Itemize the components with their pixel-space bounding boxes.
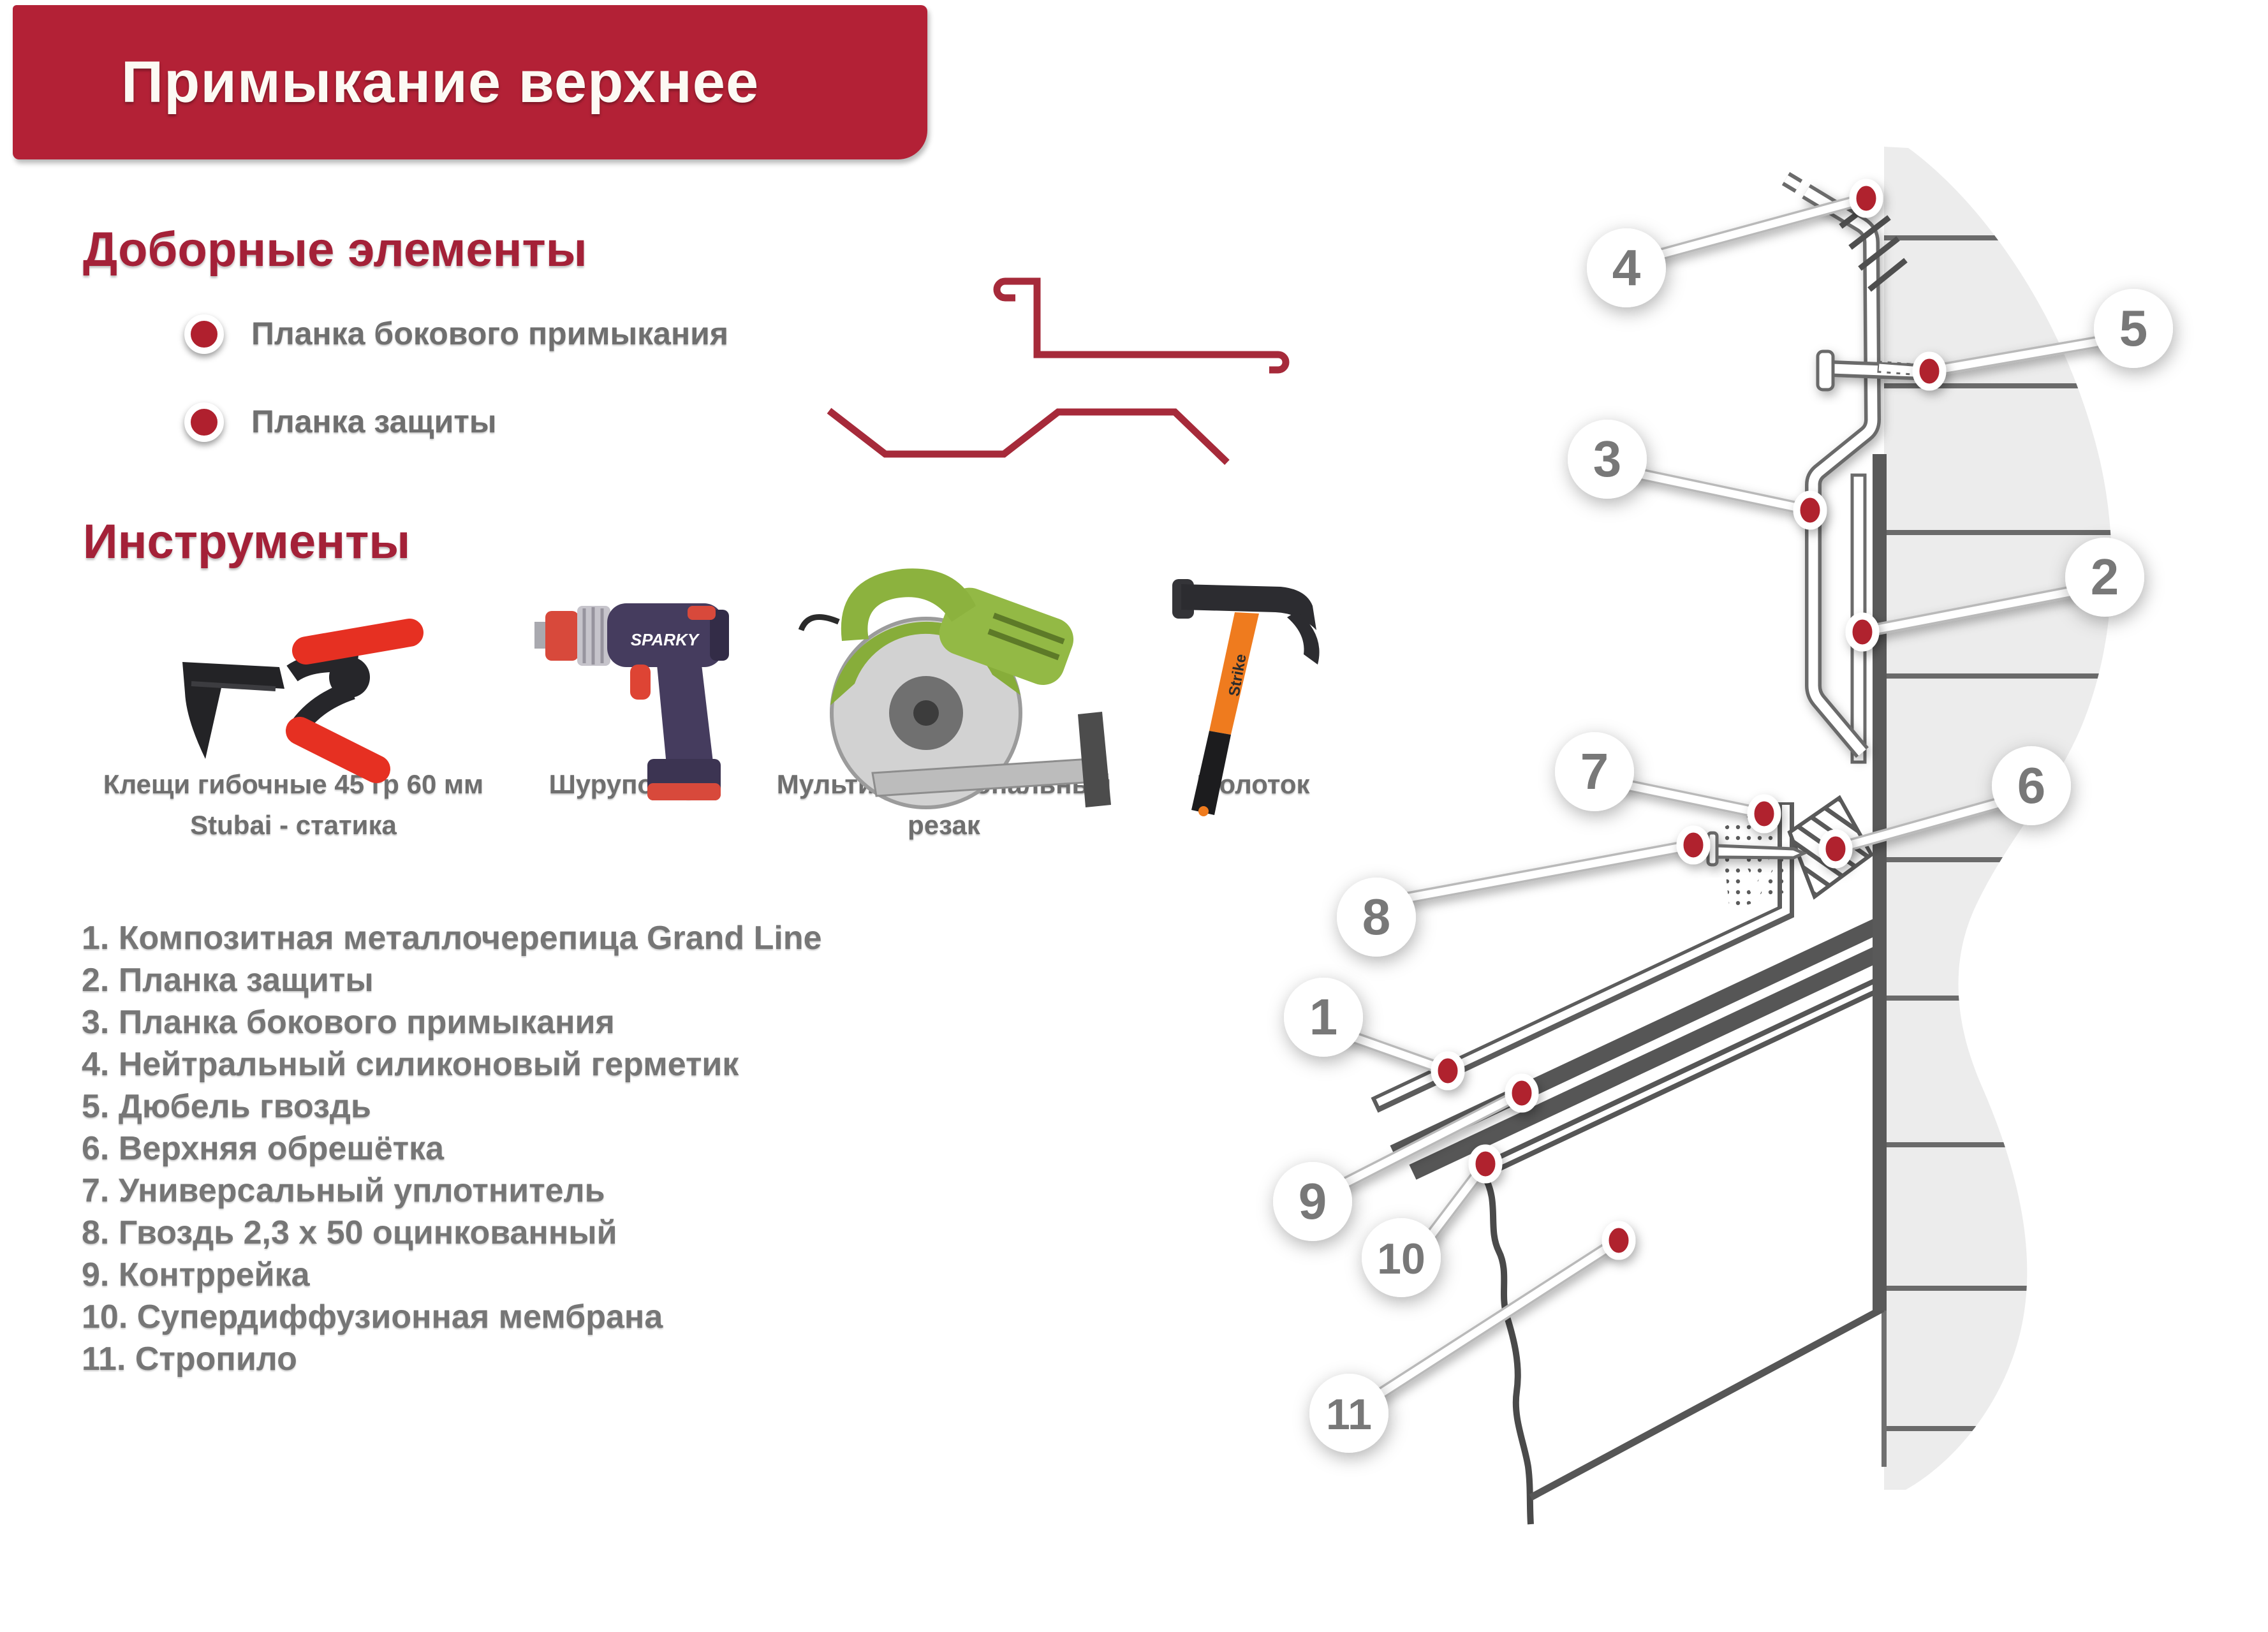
callout-9: 9 xyxy=(1273,1162,1352,1241)
side-abutment-strip-profile xyxy=(997,281,1286,370)
marker-dot-11 xyxy=(1605,1224,1632,1256)
svg-text:3: 3 xyxy=(1593,430,1622,487)
svg-text:6: 6 xyxy=(2017,757,2046,814)
cordless-drill-icon: SPARKY xyxy=(534,603,729,800)
marker-dot-2 xyxy=(1849,616,1876,648)
bending-pliers-icon xyxy=(182,633,409,769)
technical-diagram: SPARKY Strike xyxy=(0,0,2268,1632)
callout-2: 2 xyxy=(2065,538,2144,617)
callout-5: 5 xyxy=(2094,289,2173,368)
rafter-bottom-edge xyxy=(1531,1309,1883,1497)
svg-text:4: 4 xyxy=(1612,239,1641,296)
drill-brand-label: SPARKY xyxy=(631,630,700,649)
callout-7: 7 xyxy=(1555,732,1634,811)
svg-text:1: 1 xyxy=(1309,989,1338,1045)
callout-11: 11 xyxy=(1309,1374,1388,1453)
callout-4: 4 xyxy=(1587,228,1666,307)
callout-10: 10 xyxy=(1362,1218,1441,1297)
membrane-line xyxy=(1486,977,1883,1163)
marker-dot-10 xyxy=(1472,1148,1499,1180)
marker-dot-1 xyxy=(1434,1055,1461,1087)
membrane-wavy-edge xyxy=(1484,1175,1531,1524)
svg-text:2: 2 xyxy=(2091,548,2119,605)
roof-layers xyxy=(1374,802,1883,1524)
svg-text:7: 7 xyxy=(1580,743,1609,800)
callout-8: 8 xyxy=(1337,878,1416,957)
marker-dot-6 xyxy=(1822,833,1849,865)
callout-6: 6 xyxy=(1992,746,2071,825)
hammer-icon: Strike xyxy=(1172,579,1320,816)
marker-dot-8 xyxy=(1680,829,1707,861)
infographic-page: Примыкание верхнее Доборные элементы Пла… xyxy=(0,0,2268,1632)
svg-text:5: 5 xyxy=(2119,300,2148,357)
callout-1: 1 xyxy=(1284,978,1363,1057)
marker-dot-5 xyxy=(1916,355,1943,387)
callout-3: 3 xyxy=(1568,420,1647,499)
marker-dot-9 xyxy=(1508,1077,1535,1109)
svg-text:10: 10 xyxy=(1377,1235,1425,1283)
marker-dot-4 xyxy=(1853,182,1880,214)
svg-text:9: 9 xyxy=(1299,1173,1327,1230)
protection-strip-profile xyxy=(829,411,1227,462)
marker-dot-3 xyxy=(1797,494,1823,526)
wall-edge-bar xyxy=(1873,454,1887,1311)
marker-dot-7 xyxy=(1751,798,1778,830)
circular-saw-icon xyxy=(801,568,1111,807)
svg-text:11: 11 xyxy=(1326,1390,1372,1439)
svg-text:8: 8 xyxy=(1362,888,1391,945)
